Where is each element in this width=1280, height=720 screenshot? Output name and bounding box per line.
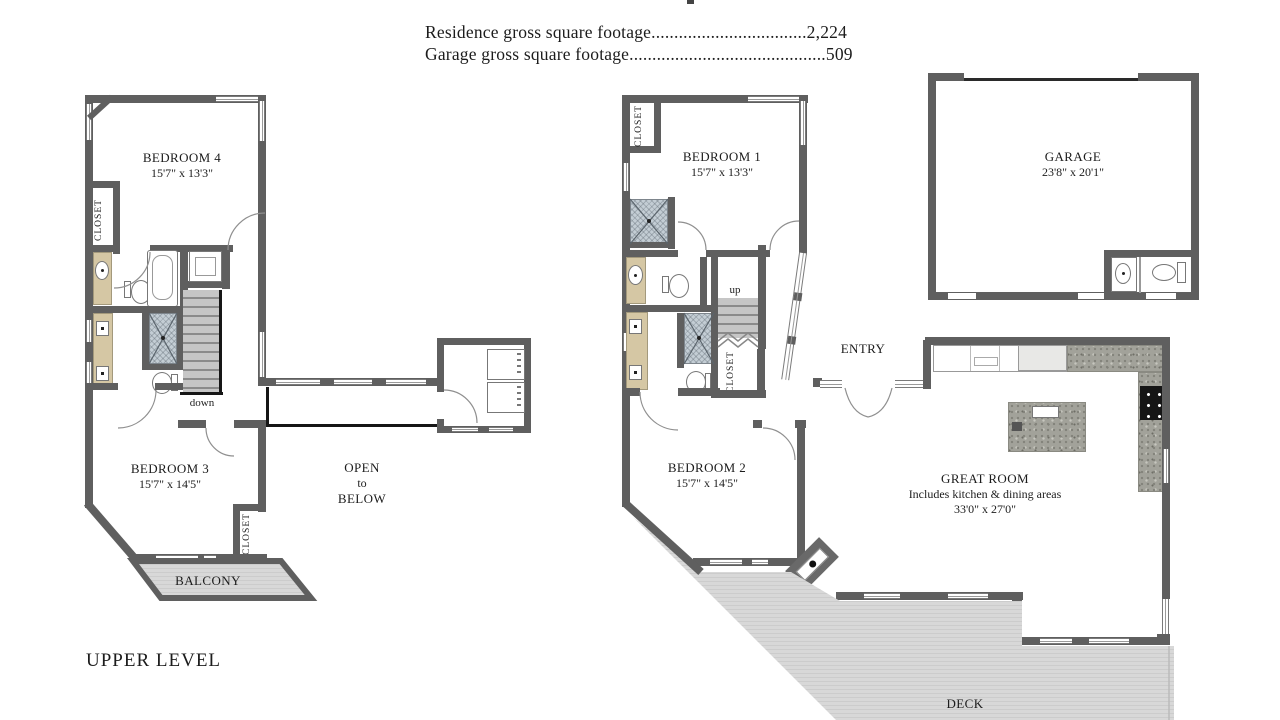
door-opening xyxy=(1146,293,1176,299)
closet-label: CLOSET xyxy=(242,512,256,556)
door-opening xyxy=(948,293,976,299)
wall xyxy=(622,388,640,396)
wall xyxy=(753,420,762,428)
wall xyxy=(1104,250,1111,300)
deck-floor xyxy=(625,510,1180,720)
stairs-down-label: down xyxy=(178,397,226,411)
window xyxy=(710,559,742,565)
deck-label: DECK xyxy=(930,696,1000,712)
window-angled xyxy=(781,252,807,380)
window xyxy=(948,593,988,599)
railing xyxy=(266,424,438,427)
window xyxy=(334,379,372,385)
shower xyxy=(684,313,714,364)
window xyxy=(1040,638,1072,644)
washer-controls xyxy=(517,353,521,376)
toilet-tank xyxy=(124,281,131,298)
closet-label: CLOSET xyxy=(726,350,740,394)
sink xyxy=(96,321,109,336)
window xyxy=(86,320,92,342)
wall xyxy=(622,250,678,257)
wall xyxy=(693,558,797,566)
wall xyxy=(622,305,720,312)
angled-wall xyxy=(87,503,137,561)
toilet xyxy=(1152,264,1176,281)
wall xyxy=(524,338,531,433)
wall xyxy=(928,73,936,300)
wall xyxy=(437,419,444,433)
sink xyxy=(629,365,642,380)
wall xyxy=(700,257,707,307)
wall xyxy=(258,425,266,512)
wall xyxy=(437,338,531,345)
door-arc xyxy=(678,222,706,250)
window xyxy=(895,380,923,388)
window xyxy=(864,593,900,599)
shower xyxy=(149,313,177,364)
window xyxy=(452,427,478,432)
cutoff-text-artifact xyxy=(687,0,694,4)
railing xyxy=(266,387,269,426)
wall xyxy=(113,181,120,254)
door-arc xyxy=(763,428,795,460)
bedroom2-label: BEDROOM 215'7" x 14'5" xyxy=(652,460,762,491)
counter-divider xyxy=(999,346,1000,371)
bedroom3-label: BEDROOM 315'7" x 14'5" xyxy=(115,461,225,492)
door-arc xyxy=(118,390,156,428)
stair-rail xyxy=(219,290,222,395)
open-to-below-label: OPEN to BELOW xyxy=(325,460,399,508)
door-arc xyxy=(640,392,678,430)
window xyxy=(820,380,842,388)
sink xyxy=(628,265,643,285)
window xyxy=(1163,449,1169,483)
door-arc xyxy=(444,390,477,423)
wall xyxy=(711,257,718,398)
wall xyxy=(93,245,114,252)
shower xyxy=(630,199,668,244)
door-opening xyxy=(1078,293,1104,299)
window xyxy=(1089,638,1129,644)
dryer-controls xyxy=(517,386,521,409)
wall xyxy=(1104,250,1199,257)
wall xyxy=(142,313,149,368)
cabinet xyxy=(189,251,222,282)
window xyxy=(204,555,216,561)
wall xyxy=(130,554,267,562)
toilet-tank xyxy=(1177,262,1186,283)
sink xyxy=(1115,263,1131,284)
wall xyxy=(677,313,684,368)
sink xyxy=(95,261,109,280)
granite-counter xyxy=(1067,345,1164,372)
wall xyxy=(437,338,444,392)
door-arc xyxy=(770,221,799,250)
stair-break xyxy=(718,339,758,347)
wall xyxy=(758,245,766,349)
window xyxy=(216,96,258,102)
wall xyxy=(630,242,675,248)
door-arc xyxy=(206,428,234,456)
wall xyxy=(1191,73,1199,300)
great-room-label: GREAT ROOM Includes kitchen & dining are… xyxy=(880,471,1090,517)
window xyxy=(259,101,265,141)
window xyxy=(489,427,513,432)
level-title: UPPER LEVEL xyxy=(86,650,221,672)
wall xyxy=(923,340,931,389)
closet-label: CLOSET xyxy=(634,104,648,148)
island-cooktop xyxy=(1012,422,1022,431)
window xyxy=(259,332,265,377)
divider xyxy=(1139,257,1141,293)
garage-label: GARAGE23'8" x 20'1" xyxy=(1000,149,1146,180)
floor-plan-canvas: Residence gross square footage..........… xyxy=(0,0,1280,720)
entry-label: ENTRY xyxy=(836,341,890,357)
staircase xyxy=(183,290,220,394)
bedroom1-label: BEDROOM 115'7" x 13'3" xyxy=(667,149,777,180)
bathtub xyxy=(147,250,178,307)
window xyxy=(752,559,768,565)
closet-label: CLOSET xyxy=(94,198,108,242)
bedroom4-label: BEDROOM 415'7" x 13'3" xyxy=(127,150,237,181)
wall xyxy=(155,383,185,390)
wall xyxy=(757,349,765,397)
toilet-tank xyxy=(662,276,669,293)
wall xyxy=(183,281,230,288)
stove xyxy=(1140,386,1163,420)
window xyxy=(748,96,800,102)
window xyxy=(156,555,198,561)
garage-sqft-line: Garage gross square footage.............… xyxy=(425,44,853,65)
window xyxy=(86,104,92,140)
island-sink xyxy=(1032,406,1059,418)
wall xyxy=(233,504,240,561)
angled-wall xyxy=(625,503,701,572)
wall xyxy=(85,386,93,508)
staircase xyxy=(718,298,758,338)
refrigerator xyxy=(1018,345,1067,371)
stair-rail xyxy=(180,392,223,395)
wall xyxy=(90,306,183,313)
stairs-up-label: up xyxy=(717,284,753,298)
window xyxy=(276,379,320,385)
sink xyxy=(96,366,109,381)
toilet xyxy=(669,274,689,298)
wall xyxy=(797,420,805,562)
window xyxy=(386,379,426,385)
window xyxy=(86,362,92,384)
window xyxy=(623,163,629,191)
window xyxy=(800,101,806,145)
window xyxy=(1162,599,1169,636)
counter-divider xyxy=(970,346,971,371)
garage-door xyxy=(964,78,1138,81)
entry-door-arc xyxy=(845,388,868,417)
wall xyxy=(142,364,184,370)
balcony-label: BALCONY xyxy=(168,573,248,589)
kitchen-sink xyxy=(974,357,998,366)
residence-sqft-line: Residence gross square footage..........… xyxy=(425,22,847,43)
sink xyxy=(629,319,642,334)
wall xyxy=(178,420,206,428)
wall xyxy=(925,337,1170,345)
entry-door-arc xyxy=(868,388,892,417)
